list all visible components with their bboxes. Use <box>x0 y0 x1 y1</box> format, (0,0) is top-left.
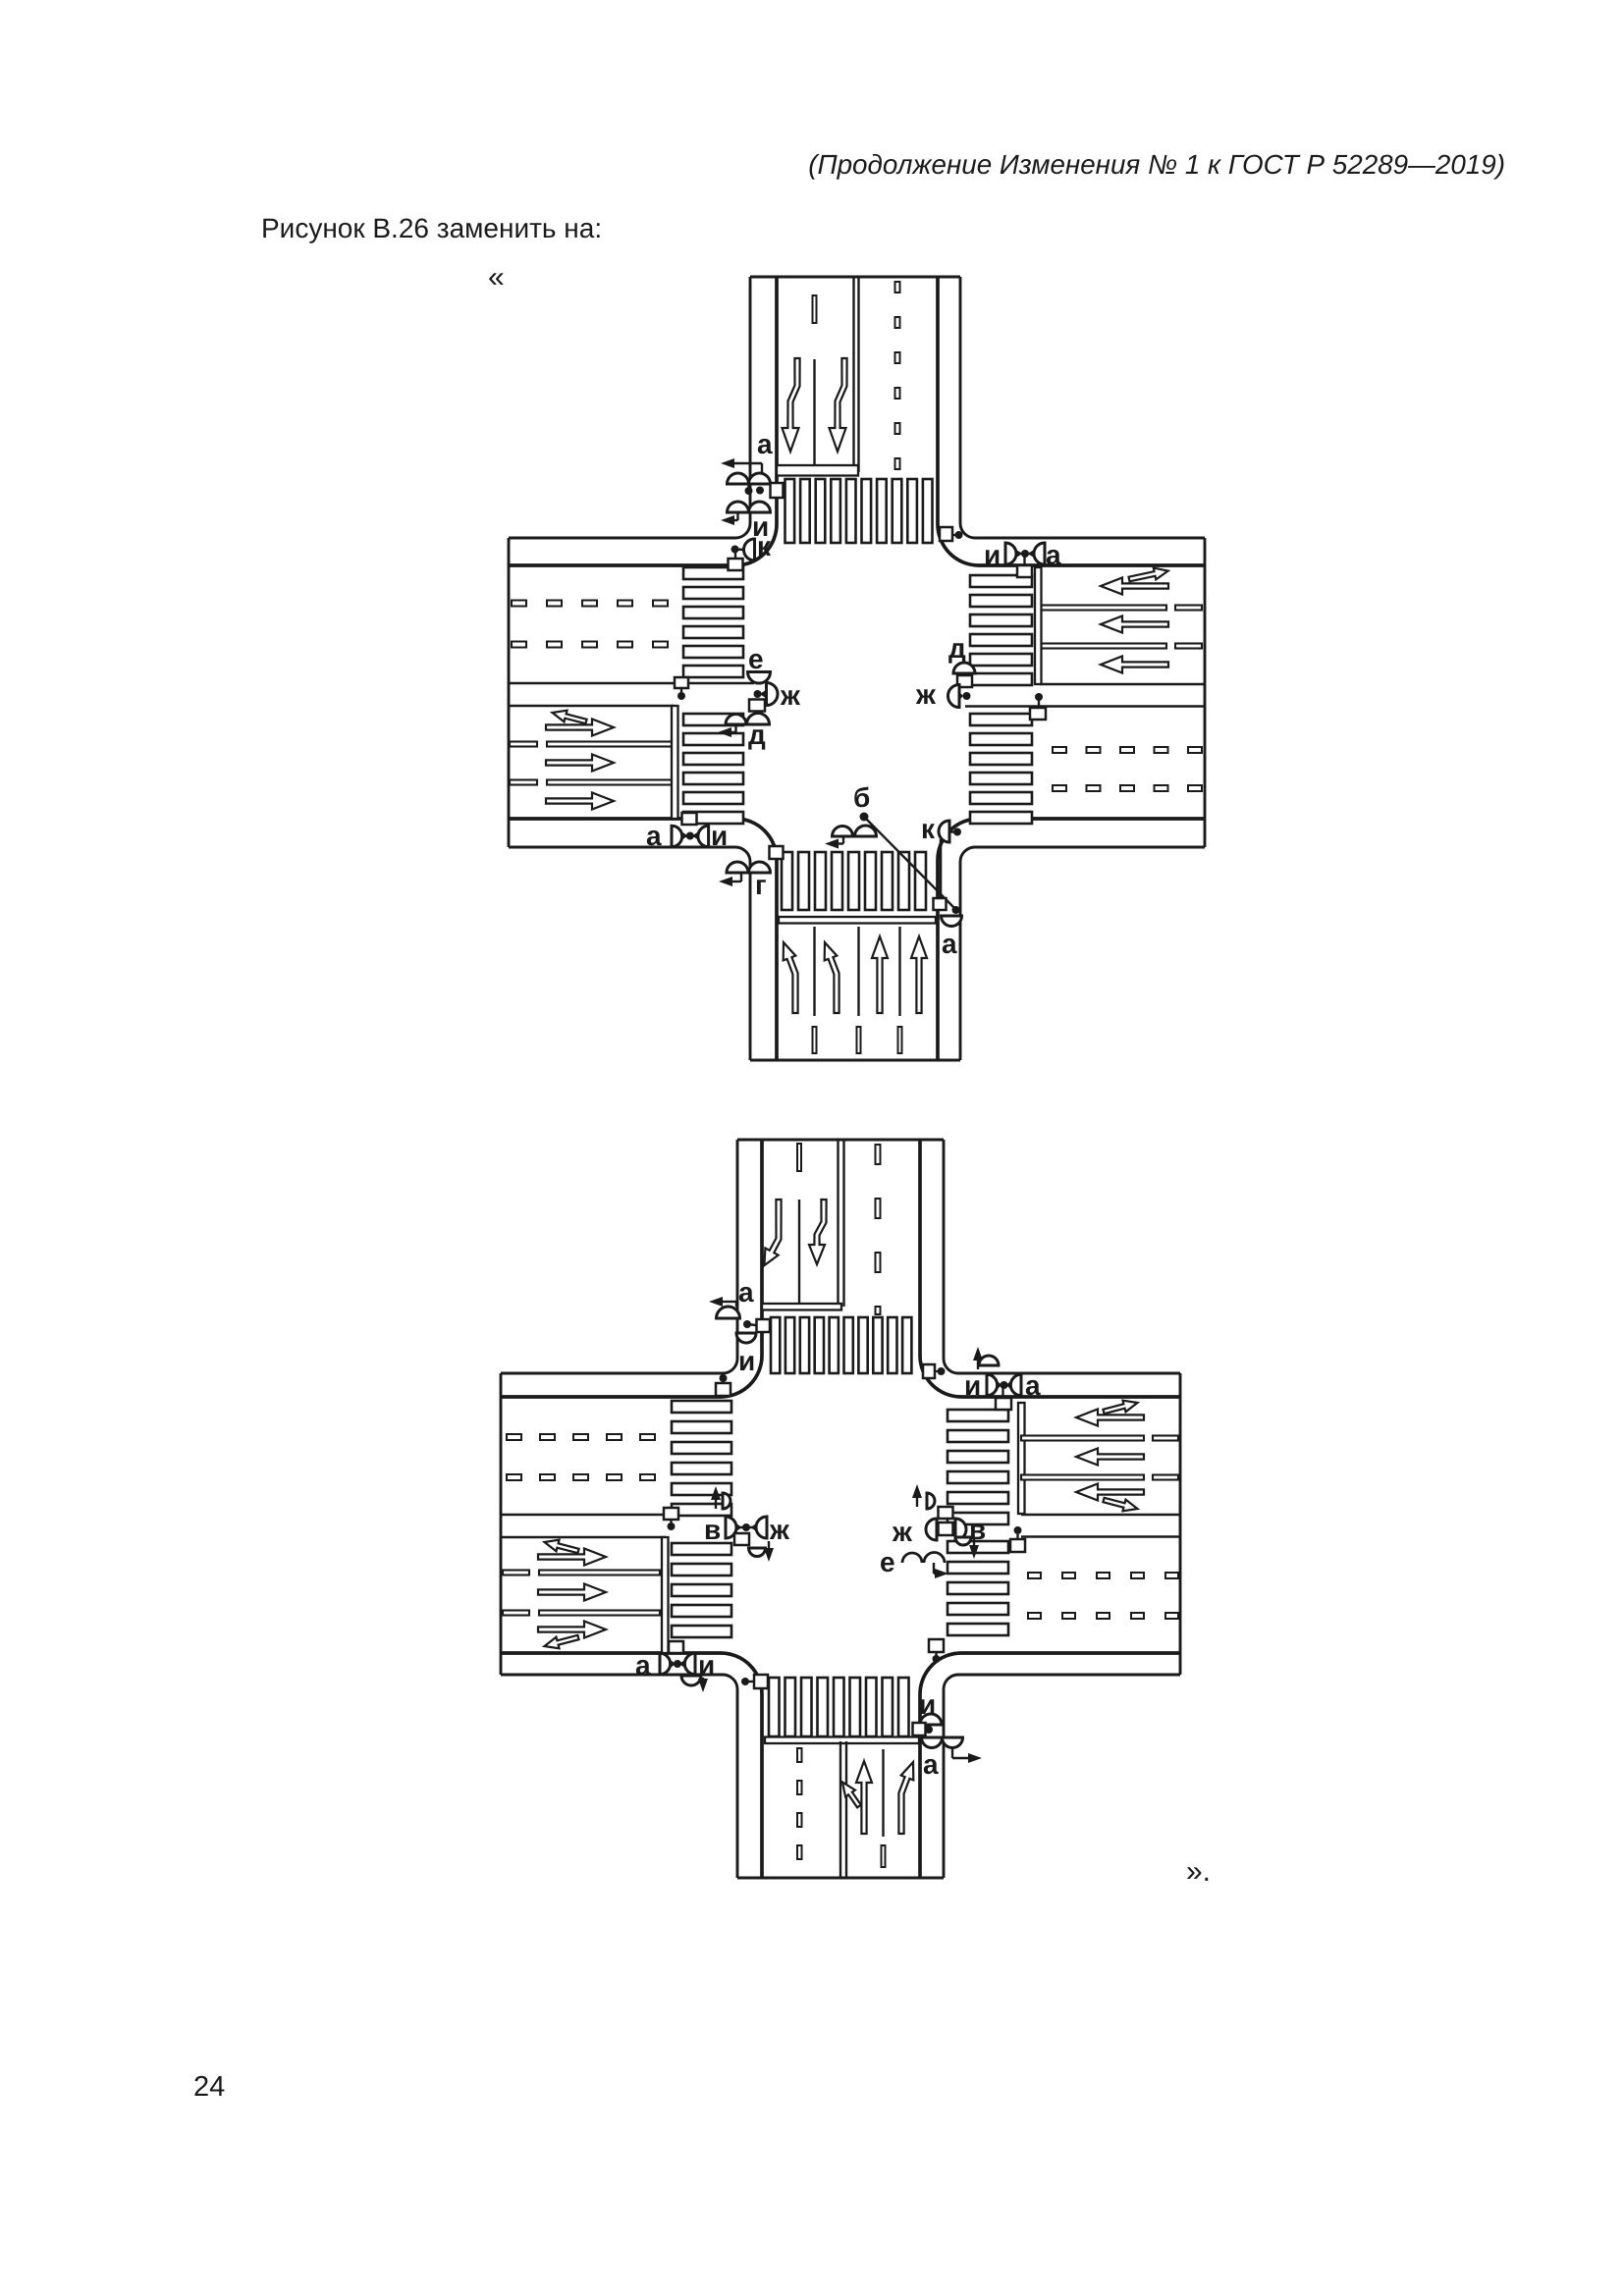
svg-text:б: б <box>853 782 870 813</box>
svg-text:24: 24 <box>193 2071 225 2103</box>
svg-text:и: и <box>964 1370 981 1401</box>
svg-text:е: е <box>748 644 764 674</box>
svg-text:(Продолжение Изменения № 1 к Г: (Продолжение Изменения № 1 к ГОСТ Р 5228… <box>808 149 1505 180</box>
svg-text:к: к <box>757 531 772 561</box>
svg-text:Рисунок В.26 заменить на:: Рисунок В.26 заменить на: <box>261 213 602 243</box>
svg-text:а: а <box>635 1650 651 1681</box>
svg-text:е: е <box>880 1547 895 1577</box>
svg-text:а: а <box>738 1277 754 1308</box>
svg-text:и: и <box>738 1346 755 1376</box>
svg-text:а: а <box>757 429 773 459</box>
svg-text:в: в <box>704 1515 721 1545</box>
svg-text:г: г <box>755 870 767 900</box>
svg-text:ж: ж <box>892 1517 913 1547</box>
svg-text:д: д <box>748 720 766 750</box>
svg-text:и: и <box>711 821 728 851</box>
svg-text:а: а <box>923 1749 939 1780</box>
svg-text:ж: ж <box>915 679 937 710</box>
svg-text:».: ». <box>1186 1855 1211 1888</box>
svg-text:ж: ж <box>780 680 801 711</box>
svg-text:к: к <box>921 814 936 844</box>
svg-text:а: а <box>1025 1370 1041 1401</box>
svg-text:а: а <box>1046 540 1061 570</box>
svg-text:ж: ж <box>769 1515 790 1545</box>
svg-text:д: д <box>948 633 966 664</box>
svg-text:а: а <box>942 929 957 959</box>
svg-text:и: и <box>984 540 1001 570</box>
svg-text:«: « <box>488 261 505 294</box>
svg-text:а: а <box>646 821 662 851</box>
